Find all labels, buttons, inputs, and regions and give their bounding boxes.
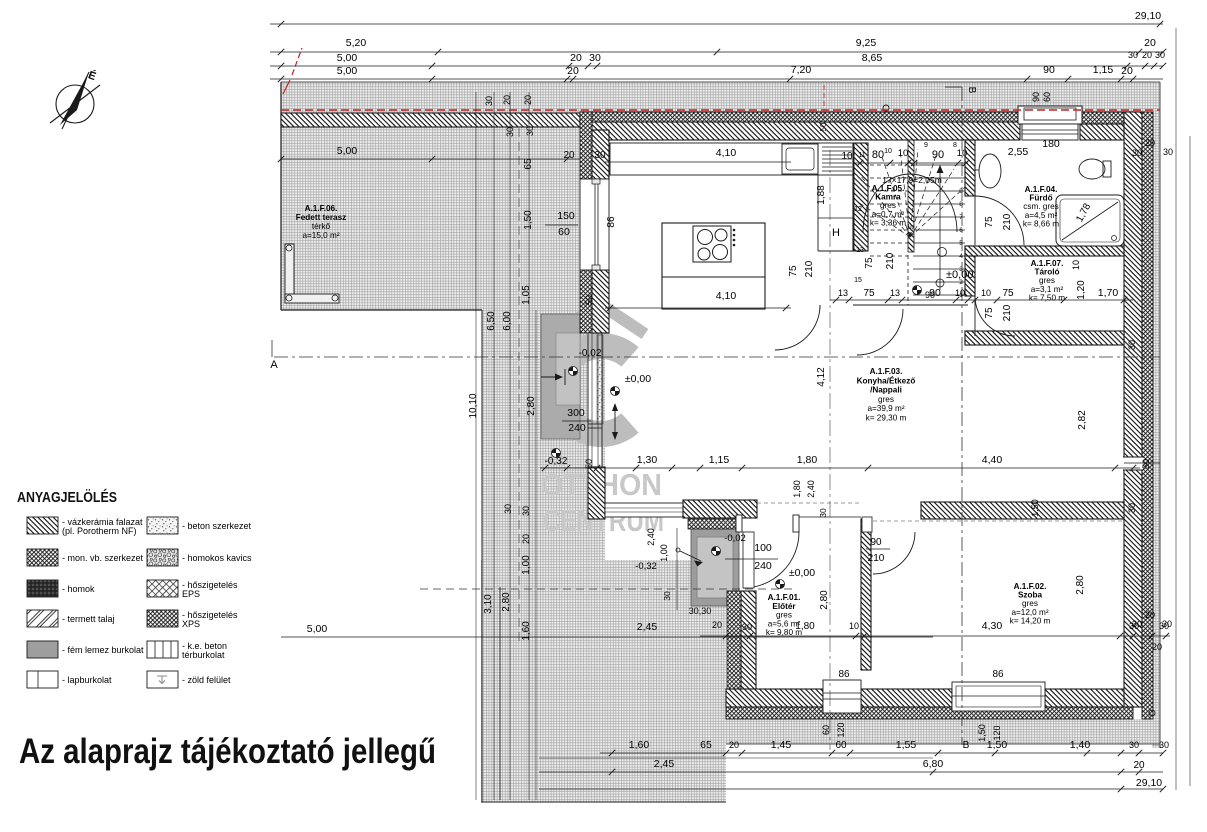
svg-text:65: 65: [523, 158, 534, 170]
svg-text:20: 20: [570, 52, 582, 64]
svg-text:90: 90: [1043, 64, 1055, 76]
svg-text:20: 20: [712, 620, 722, 630]
svg-text:A.1.F.01.: A.1.F.01.: [768, 593, 801, 602]
svg-text:- termett talaj: - termett talaj: [62, 614, 115, 624]
svg-text:90: 90: [932, 149, 944, 161]
svg-text:60: 60: [1042, 92, 1052, 102]
svg-text:2,45: 2,45: [654, 758, 675, 770]
svg-text:Az alaprajz tájékoztató jelleg: Az alaprajz tájékoztató jellegű: [19, 731, 436, 771]
svg-text:20: 20: [1144, 37, 1156, 49]
svg-text:30,30: 30,30: [689, 606, 712, 616]
svg-text:86: 86: [838, 669, 850, 680]
svg-text:10: 10: [841, 151, 853, 162]
svg-text:(pl. Porotherm NF): (pl. Porotherm NF): [62, 526, 137, 536]
svg-text:11: 11: [858, 152, 865, 159]
svg-text:20: 20: [521, 534, 531, 544]
svg-text:75: 75: [788, 265, 799, 277]
svg-text:210: 210: [868, 553, 885, 564]
svg-text:30: 30: [594, 150, 606, 161]
svg-text:1,40: 1,40: [1070, 739, 1091, 751]
svg-text:A.1.F.06.: A.1.F.06.: [305, 204, 338, 213]
svg-text:- lapburkolat: - lapburkolat: [62, 675, 112, 685]
svg-text:1,15: 1,15: [1093, 64, 1114, 76]
svg-text:75: 75: [864, 257, 875, 269]
svg-text:±0,00: ±0,00: [946, 269, 973, 281]
svg-text:20: 20: [1142, 50, 1152, 60]
svg-text:30: 30: [521, 506, 531, 516]
svg-text:29,10: 29,10: [1135, 10, 1161, 22]
svg-text:8,65: 8,65: [862, 52, 883, 64]
svg-text:180: 180: [1042, 138, 1060, 150]
svg-text:10,10: 10,10: [468, 393, 479, 418]
svg-text:10: 10: [849, 621, 859, 631]
svg-text:20: 20: [563, 150, 575, 161]
svg-text:8: 8: [959, 201, 963, 208]
svg-text:k= 29,30 m: k= 29,30 m: [866, 414, 907, 423]
svg-text:60: 60: [558, 226, 570, 238]
svg-text:1,80: 1,80: [792, 480, 802, 498]
svg-text:1,50: 1,50: [523, 210, 534, 230]
svg-text:30: 30: [505, 127, 515, 137]
svg-text:10: 10: [884, 148, 892, 155]
svg-text:20: 20: [502, 95, 512, 105]
svg-text:ANYAGJELÖLÉS: ANYAGJELÖLÉS: [17, 489, 117, 506]
svg-text:50: 50: [1141, 459, 1151, 469]
svg-text:15: 15: [854, 277, 862, 284]
svg-text:térkő: térkő: [312, 222, 331, 231]
svg-text:4,10: 4,10: [716, 290, 737, 302]
svg-text:90: 90: [1031, 92, 1041, 102]
svg-text:30: 30: [1129, 740, 1139, 750]
svg-text:10: 10: [898, 148, 909, 159]
svg-text:30: 30: [1127, 340, 1137, 350]
svg-text:30: 30: [662, 591, 672, 601]
svg-text:4,10: 4,10: [716, 147, 737, 159]
svg-text:±0,00: ±0,00: [789, 567, 815, 579]
svg-text:térburkolat: térburkolat: [182, 650, 225, 660]
svg-text:86: 86: [992, 669, 1004, 680]
svg-text:210: 210: [1002, 304, 1013, 321]
svg-text:30: 30: [525, 126, 535, 136]
svg-text:50: 50: [584, 295, 594, 305]
svg-text:6,50: 6,50: [486, 311, 497, 331]
svg-text:30: 30: [1155, 50, 1165, 60]
svg-text:20: 20: [729, 740, 739, 750]
svg-text:k= 9,80 m: k= 9,80 m: [766, 628, 802, 637]
svg-text:30: 30: [503, 504, 513, 514]
svg-text:80: 80: [872, 149, 884, 161]
svg-text:5,00: 5,00: [307, 623, 328, 635]
svg-text:75: 75: [1002, 288, 1014, 299]
svg-text:5,00: 5,00: [337, 52, 358, 64]
svg-text:A.1.F.03.: A.1.F.03.: [870, 367, 903, 376]
svg-text:90: 90: [870, 537, 882, 548]
svg-text:2,40: 2,40: [806, 480, 816, 498]
svg-text:a=15,0 m²: a=15,0 m²: [302, 231, 339, 240]
svg-text:9,25: 9,25: [856, 37, 877, 49]
svg-text:XPS: XPS: [182, 619, 200, 629]
svg-text:- fém lemez burkolat: - fém lemez burkolat: [62, 645, 144, 655]
svg-text:20: 20: [567, 65, 579, 77]
svg-text:20: 20: [1121, 65, 1133, 77]
svg-text:8: 8: [953, 142, 957, 149]
svg-text:A: A: [270, 359, 278, 371]
svg-text:6,00: 6,00: [502, 311, 513, 331]
svg-text:4,40: 4,40: [982, 454, 1003, 466]
svg-text:EPS: EPS: [182, 589, 200, 599]
svg-text:B: B: [963, 740, 970, 751]
svg-text:Fedett terasz: Fedett terasz: [296, 213, 347, 222]
svg-text:1,60: 1,60: [521, 621, 532, 641]
svg-text:5,00: 5,00: [337, 145, 358, 157]
svg-text:9: 9: [924, 142, 928, 149]
svg-text:a=5,6 m²: a=5,6 m²: [768, 619, 801, 628]
svg-text:- mon. vb. szerkezet: - mon. vb. szerkezet: [62, 553, 144, 563]
svg-text:30: 30: [818, 508, 828, 518]
svg-text:13: 13: [856, 247, 864, 254]
svg-text:210: 210: [804, 260, 815, 277]
svg-text:- zöld felület: - zöld felület: [182, 675, 231, 685]
svg-text:10: 10: [1071, 260, 1081, 270]
svg-text:gres: gres: [776, 611, 792, 620]
svg-text:10: 10: [957, 148, 968, 159]
svg-text:4,12: 4,12: [816, 367, 827, 387]
svg-text:6: 6: [959, 227, 963, 234]
svg-text:20: 20: [1152, 642, 1162, 652]
svg-text:300: 300: [567, 407, 585, 419]
svg-text:90: 90: [925, 290, 935, 300]
svg-text:1,20: 1,20: [1076, 280, 1087, 300]
svg-text:-0,02: -0,02: [579, 348, 602, 359]
svg-text:30: 30: [1128, 50, 1138, 60]
svg-text:- beton szerkezet: - beton szerkezet: [182, 521, 252, 531]
svg-text:1,88: 1,88: [816, 185, 827, 205]
svg-text:30: 30: [742, 622, 752, 632]
svg-text:30: 30: [1159, 740, 1169, 750]
svg-text:-0,32: -0,32: [635, 561, 657, 572]
svg-text:- homok: - homok: [62, 584, 95, 594]
svg-text:-0,02: -0,02: [724, 533, 746, 544]
svg-text:20: 20: [1145, 610, 1155, 620]
svg-text:210: 210: [885, 252, 896, 269]
svg-text:4,30: 4,30: [982, 620, 1003, 632]
svg-text:1,60: 1,60: [629, 739, 650, 751]
svg-text:/Nappali: /Nappali: [870, 386, 902, 395]
svg-text:30: 30: [1129, 621, 1139, 631]
svg-text:1,80: 1,80: [797, 454, 818, 466]
svg-text:50: 50: [819, 122, 828, 131]
svg-text:Előtér: Előtér: [772, 602, 796, 611]
svg-text:150: 150: [557, 210, 575, 222]
svg-text:gres: gres: [878, 395, 894, 404]
svg-text:k= 7,50 m: k= 7,50 m: [1029, 293, 1065, 302]
svg-text:240: 240: [754, 560, 772, 572]
svg-text:4: 4: [959, 253, 963, 260]
svg-text:5: 5: [959, 240, 963, 247]
svg-text:120: 120: [836, 722, 846, 737]
svg-text:30: 30: [1159, 621, 1169, 631]
svg-text:É: É: [87, 68, 98, 83]
svg-text:60: 60: [821, 725, 831, 735]
svg-text:10: 10: [955, 288, 965, 298]
svg-text:5,20: 5,20: [346, 37, 367, 49]
svg-text:2,80: 2,80: [819, 590, 830, 610]
svg-text:7: 7: [959, 214, 963, 221]
svg-text:20: 20: [1133, 760, 1145, 771]
svg-text:30: 30: [1132, 148, 1142, 158]
svg-text:3,10: 3,10: [483, 594, 494, 614]
svg-text:30: 30: [1127, 503, 1137, 513]
svg-text:20: 20: [523, 95, 533, 105]
svg-text:1,50: 1,50: [1030, 499, 1040, 517]
svg-text:10: 10: [981, 288, 991, 298]
svg-text:1,70: 1,70: [1098, 287, 1119, 299]
svg-text:- homokos kavics: - homokos kavics: [182, 553, 252, 563]
svg-text:12: 12: [854, 206, 862, 213]
svg-text:100: 100: [754, 542, 772, 554]
svg-text:k= 8,66 m: k= 8,66 m: [1023, 219, 1059, 228]
svg-text:30: 30: [484, 96, 494, 106]
svg-text:60: 60: [835, 740, 847, 751]
svg-text:29,10: 29,10: [1136, 777, 1162, 789]
svg-text:k= 3,36 m: k= 3,36 m: [870, 218, 906, 227]
svg-text:20: 20: [1145, 138, 1155, 148]
svg-text:2,82: 2,82: [1077, 410, 1088, 430]
svg-text:210: 210: [1002, 213, 1013, 230]
svg-text:30: 30: [1163, 147, 1173, 157]
svg-text:1,05: 1,05: [521, 285, 532, 305]
svg-text:2,40: 2,40: [646, 528, 656, 546]
svg-text:1,15: 1,15: [709, 454, 730, 466]
svg-text:13: 13: [890, 288, 900, 298]
svg-text:2,45: 2,45: [637, 621, 658, 633]
svg-text:±0,00: ±0,00: [625, 373, 651, 385]
svg-text:5,00: 5,00: [337, 65, 358, 77]
svg-text:H: H: [832, 227, 840, 239]
svg-text:k= 14,20 m: k= 14,20 m: [1010, 616, 1051, 625]
svg-text:65: 65: [700, 739, 712, 751]
svg-text:2,80: 2,80: [501, 592, 512, 612]
svg-text:13: 13: [838, 288, 848, 298]
svg-text:30: 30: [589, 52, 601, 64]
svg-text:2,55: 2,55: [1008, 146, 1029, 158]
svg-text:7,20: 7,20: [791, 64, 812, 76]
svg-text:1,00: 1,00: [521, 555, 532, 575]
svg-text:a=39,9 m²: a=39,9 m²: [867, 404, 904, 413]
svg-text:75: 75: [984, 307, 995, 319]
svg-text:1,50: 1,50: [977, 724, 987, 742]
svg-text:B: B: [966, 87, 977, 94]
svg-text:75: 75: [984, 216, 995, 228]
svg-text:240: 240: [568, 422, 586, 434]
svg-text:1,45: 1,45: [771, 739, 792, 751]
svg-text:1,00: 1,00: [659, 544, 669, 562]
svg-text:2,80: 2,80: [526, 396, 537, 416]
svg-text:1,50: 1,50: [987, 739, 1008, 751]
svg-text:1,30: 1,30: [637, 454, 658, 466]
svg-text:50: 50: [584, 459, 594, 469]
svg-text:Konyha/Étkező: Konyha/Étkező: [857, 375, 916, 385]
svg-text:2,80: 2,80: [1075, 575, 1086, 595]
svg-text:86: 86: [606, 216, 617, 228]
svg-text:6,80: 6,80: [923, 758, 944, 770]
svg-text:1,55: 1,55: [896, 739, 917, 751]
svg-text:75: 75: [863, 288, 875, 299]
